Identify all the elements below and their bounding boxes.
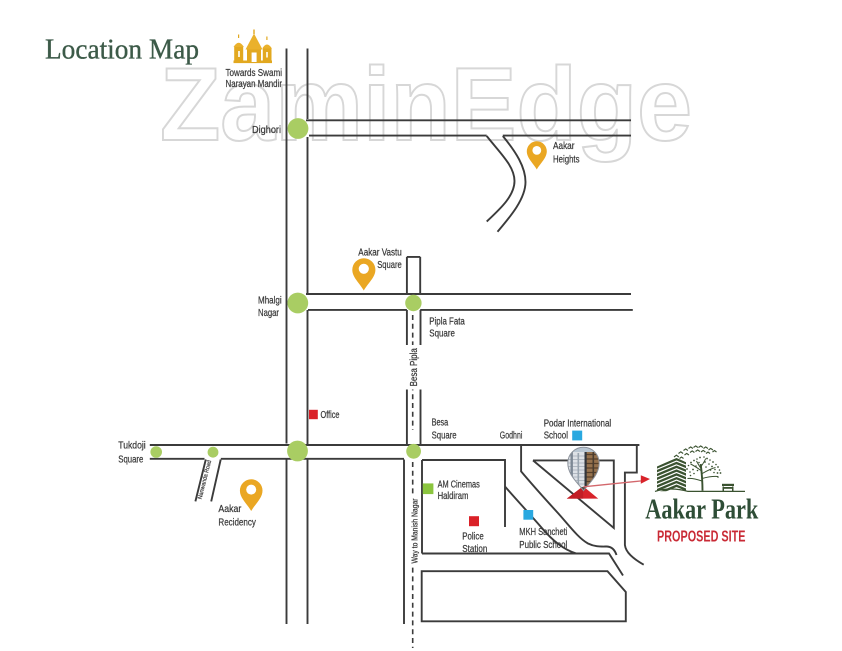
svg-text:Podar International: Podar International <box>544 418 612 429</box>
svg-text:Square: Square <box>118 455 143 466</box>
svg-text:MKH Sancheti: MKH Sancheti <box>519 527 567 538</box>
svg-text:Way to Manish Nagar: Way to Manish Nagar <box>411 498 420 563</box>
svg-text:Mhalgi: Mhalgi <box>258 295 282 306</box>
svg-text:Aakar Park: Aakar Park <box>645 495 758 526</box>
svg-text:Aakar: Aakar <box>218 504 241 515</box>
svg-text:PROPOSED SITE: PROPOSED SITE <box>657 528 746 545</box>
svg-text:Station: Station <box>462 544 487 555</box>
svg-text:ZaminEdge: ZaminEdge <box>160 47 692 163</box>
svg-text:School: School <box>544 431 568 442</box>
svg-text:Square: Square <box>377 260 402 271</box>
svg-text:Pipla Fata: Pipla Fata <box>429 316 465 327</box>
svg-text:Square: Square <box>432 431 457 442</box>
svg-text:Narayan Mandir: Narayan Mandir <box>226 79 283 90</box>
svg-text:Square: Square <box>429 329 455 340</box>
svg-text:Office: Office <box>321 410 340 421</box>
svg-text:Dighori: Dighori <box>252 125 281 136</box>
svg-text:Besa Pipla: Besa Pipla <box>409 348 420 387</box>
svg-text:Public School: Public School <box>519 540 567 551</box>
svg-text:Location Map: Location Map <box>45 34 199 66</box>
svg-text:Recidency: Recidency <box>218 518 256 529</box>
svg-text:Police: Police <box>462 532 484 543</box>
svg-text:AM Cinemas: AM Cinemas <box>438 480 480 491</box>
svg-text:Heights: Heights <box>553 155 580 166</box>
svg-text:Tukdoji: Tukdoji <box>118 440 145 451</box>
svg-text:Towards Swami: Towards Swami <box>226 68 283 79</box>
svg-text:Aakar Vastu: Aakar Vastu <box>358 247 402 258</box>
svg-text:Besa: Besa <box>432 418 449 429</box>
svg-text:Aakar: Aakar <box>553 141 575 152</box>
svg-text:Haldiram: Haldiram <box>438 491 469 502</box>
svg-text:Godhni: Godhni <box>500 431 523 442</box>
svg-text:Nagar: Nagar <box>258 308 280 319</box>
